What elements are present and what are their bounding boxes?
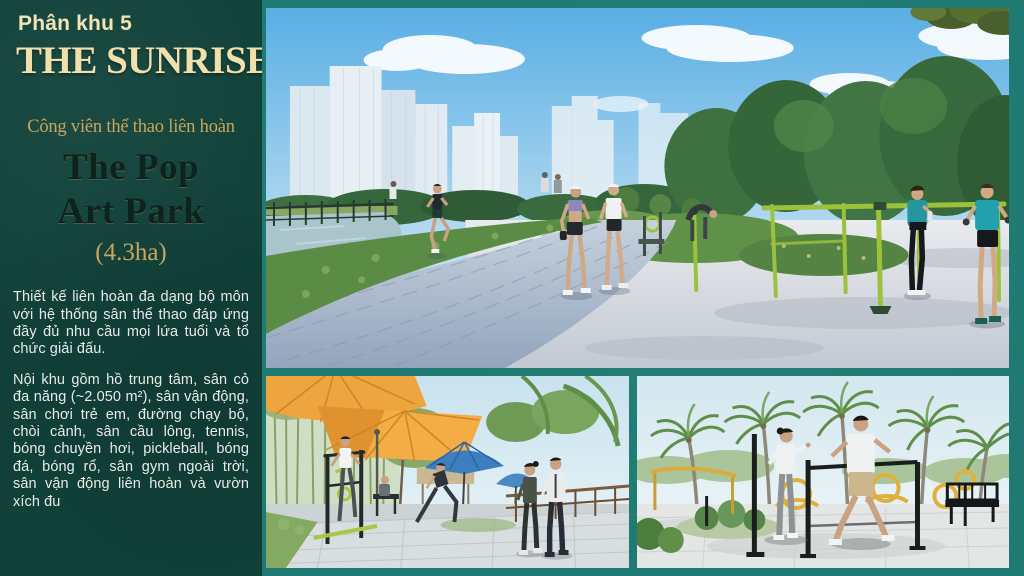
park-subtitle: Công viên thể thao liên hoàn	[0, 117, 262, 138]
description-paragraph-2: Nội khu gồm hồ trung tâm, sân cỏ đa năng…	[13, 372, 249, 511]
hero-park-render	[266, 8, 1009, 368]
photo-collage	[262, 0, 1024, 576]
park-name: The Pop Art Park	[0, 146, 262, 233]
park-area: (4.3ha)	[0, 239, 262, 267]
sidebar: Phân khu 5 THE SUNRISE Công viên thể tha…	[0, 0, 262, 576]
park-description: Thiết kế liên hoàn đa dạng bộ môn với hệ…	[0, 289, 262, 511]
park-name-line2: Art Park	[58, 191, 205, 232]
brochure-slide: Phân khu 5 THE SUNRISE Công viên thể tha…	[0, 0, 1024, 576]
floor	[637, 504, 1009, 568]
description-paragraph-1: Thiết kế liên hoàn đa dạng bộ môn với hệ…	[13, 289, 249, 359]
photo-umbrella-gym	[266, 376, 629, 568]
subdivision-badge: Phân khu 5	[18, 12, 262, 36]
park-name-line1: The Pop	[63, 147, 199, 188]
umbrella-gym-illustration	[266, 376, 629, 568]
park-heading-block: Công viên thể thao liên hoàn The Pop Art…	[0, 117, 262, 267]
palm-gym-illustration	[637, 376, 1009, 568]
light-pole-lamp	[374, 429, 380, 435]
hero-park-illustration	[266, 8, 1009, 368]
project-title: THE SUNRISE	[16, 38, 262, 83]
photo-palm-gym	[637, 376, 1009, 568]
